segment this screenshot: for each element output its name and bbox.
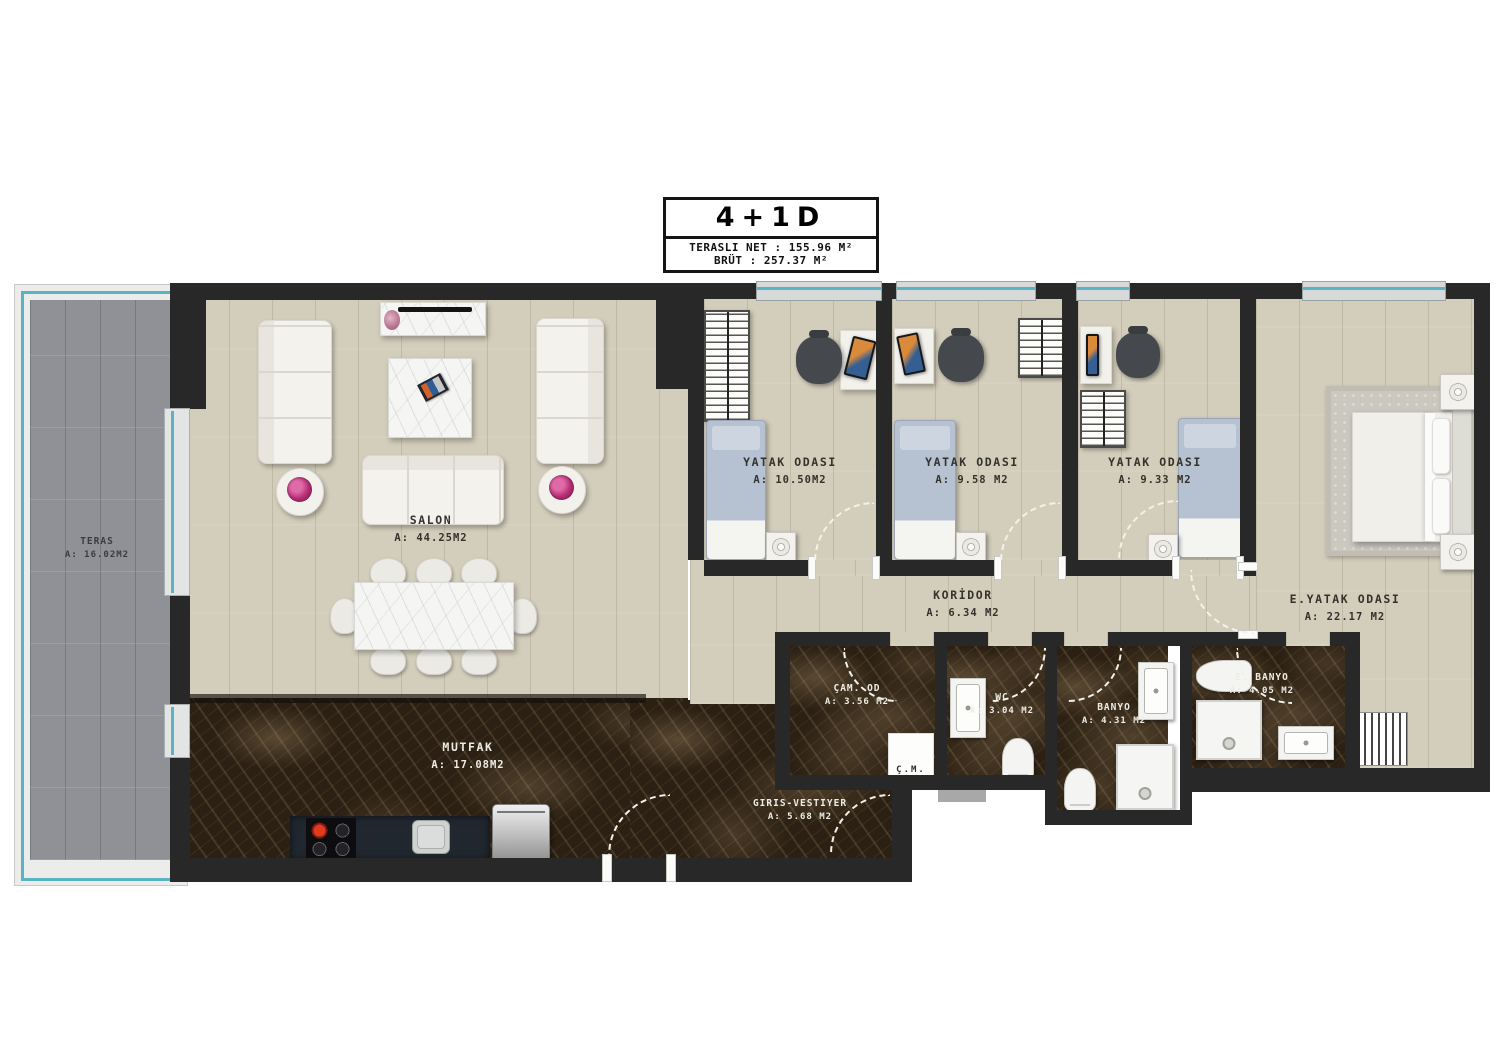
pillow <box>1432 478 1450 534</box>
net-area-text: TERASLI NET : 155.96 M² <box>666 241 876 254</box>
door-gap-laundry <box>890 632 934 646</box>
terrace-door-kitchen <box>164 704 190 758</box>
cooktop-icon <box>306 818 356 860</box>
wall <box>876 283 892 560</box>
nightstand-bedroom2 <box>956 532 986 562</box>
floor-plan: 4+1D TERASLI NET : 155.96 M² BRÜT : 257.… <box>0 0 1500 1060</box>
office-chair-icon <box>1116 332 1160 378</box>
room-label-koridor: KORİDOR A: 6.34 M2 <box>926 588 999 619</box>
bed-foot <box>895 520 955 559</box>
dining-table <box>354 582 514 650</box>
room-name: GIRIS-VESTIYER <box>753 798 847 809</box>
room-area: A: 17.08M2 <box>431 759 504 771</box>
wall <box>170 283 206 409</box>
nightstand-master-top <box>1440 374 1476 410</box>
nightstand-bedroom1 <box>766 532 796 562</box>
door-jamb <box>602 854 612 882</box>
room-area: A: 4.05 M2 <box>1230 686 1294 696</box>
wall <box>1045 810 1192 825</box>
master-bath-sink-icon <box>1278 726 1334 760</box>
wardrobe-bedroom2 <box>1018 318 1064 378</box>
room-label-teras: TERAS A: 16.02M2 <box>65 536 129 560</box>
dining-chair <box>370 646 406 675</box>
bed-foot <box>707 520 765 559</box>
wall <box>170 594 190 706</box>
door-gap-bedroom2 <box>998 560 1060 576</box>
room-area: A: 44.25M2 <box>394 532 467 544</box>
pillow <box>712 426 760 450</box>
terrace-floor <box>30 300 170 860</box>
wall <box>1240 283 1256 560</box>
room-name: WC <box>970 692 1034 703</box>
room-label-yatak3: YATAK ODASI A: 9.33 M2 <box>1108 455 1202 486</box>
window-bedroom2 <box>896 281 1036 301</box>
door-gap-master-bathroom <box>1286 632 1330 646</box>
room-name: YATAK ODASI <box>925 455 1019 469</box>
room-label-yatak1: YATAK ODASI A: 10.50M2 <box>743 455 837 486</box>
wall <box>170 283 704 300</box>
wall <box>1474 283 1490 792</box>
office-chair-icon <box>796 336 842 384</box>
room-label-giris: GIRIS-VESTIYER A: 5.68 M2 <box>753 798 847 822</box>
room-name: MUTFAK <box>431 740 504 754</box>
room-name: YATAK ODASI <box>1108 455 1202 469</box>
room-area: A: 6.34 M2 <box>926 607 999 619</box>
title-block: 4+1D TERASLI NET : 155.96 M² BRÜT : 257.… <box>663 197 879 273</box>
room-name: SALON <box>394 513 467 527</box>
wall <box>1345 632 1360 768</box>
room-name: BANYO <box>1082 702 1146 713</box>
plan-type-label: 4+1D <box>716 202 827 233</box>
room-name: YATAK ODASI <box>743 455 837 469</box>
wall <box>775 632 790 790</box>
door-gap-bathroom <box>1064 632 1108 646</box>
door-jamb <box>666 854 676 882</box>
wardrobe-bedroom1 <box>704 310 750 422</box>
office-chair-icon <box>938 334 984 382</box>
dining-chair <box>461 646 497 675</box>
wall <box>1180 632 1192 825</box>
room-label-wc: WC A: 3.04 M2 <box>970 692 1034 716</box>
wall <box>775 775 947 790</box>
wardrobe-bedroom3 <box>1080 390 1126 448</box>
master-bath-shower-icon <box>1196 700 1262 760</box>
room-area: A: 9.58 M2 <box>925 474 1019 486</box>
tv-icon <box>398 307 472 312</box>
bed-bedroom1 <box>706 420 766 560</box>
door-gap-wc <box>988 632 1032 646</box>
flowers-left-icon <box>287 477 312 502</box>
window-glass <box>1077 287 1129 290</box>
terrace-sliding-door-salon <box>164 408 190 596</box>
window-glass <box>1303 287 1445 290</box>
wall <box>892 788 912 882</box>
nightstand-master-bottom <box>1440 534 1476 570</box>
dining-chair <box>416 646 452 675</box>
pillow <box>1184 424 1236 448</box>
plan-type-box: 4+1D <box>663 197 879 239</box>
window-bedroom3 <box>1076 281 1130 301</box>
room-name: TERAS <box>65 536 129 547</box>
room-name: E. BANYO <box>1230 672 1294 683</box>
bathroom-shower-icon <box>1116 744 1174 810</box>
wall <box>935 775 1057 790</box>
fridge-icon <box>492 804 550 862</box>
room-area: A: 10.50M2 <box>743 474 837 486</box>
corridor-connector-floor <box>690 646 775 704</box>
room-area: A: 22.17 M2 <box>1290 611 1401 623</box>
room-label-yatak2: YATAK ODASI A: 9.58 M2 <box>925 455 1019 486</box>
bathroom-toilet-icon <box>1064 768 1096 812</box>
room-name: E.YATAK ODASI <box>1290 592 1401 606</box>
wall <box>1062 283 1078 560</box>
room-area: A: 5.68 M2 <box>753 812 847 822</box>
wall <box>688 283 704 560</box>
flowers-right-icon <box>549 475 574 500</box>
room-label-ebanyo: E. BANYO A: 4.05 M2 <box>1230 672 1294 696</box>
room-label-camod: ÇAM. OD A: 3.56 M2 <box>825 683 889 707</box>
room-area: A: 9.33 M2 <box>1108 474 1202 486</box>
plan-areas-box: TERASLI NET : 155.96 M² BRÜT : 257.37 M² <box>663 239 879 273</box>
window-glass <box>897 287 1035 290</box>
kitchen-sink-icon <box>412 820 450 854</box>
room-area: A: 4.31 M2 <box>1082 716 1146 726</box>
tv-decor-icon <box>384 310 400 330</box>
room-area: A: 16.02M2 <box>65 550 129 560</box>
headboard-master <box>1452 404 1472 550</box>
sofa-right <box>536 318 604 464</box>
sofa-left <box>258 320 332 464</box>
room-area: A: 3.56 M2 <box>825 697 889 707</box>
bed-bedroom2 <box>894 420 956 560</box>
wall <box>1045 632 1057 825</box>
room-label-eyatak: E.YATAK ODASI A: 22.17 M2 <box>1290 592 1401 623</box>
door-gap-bedroom1 <box>812 560 874 576</box>
pillow <box>1432 418 1450 474</box>
bed-bedroom3 <box>1178 418 1242 558</box>
wall <box>1180 768 1490 792</box>
room-label-salon: SALON A: 44.25M2 <box>394 513 467 544</box>
bed-foot <box>1179 518 1241 557</box>
room-label-banyo: BANYO A: 4.31 M2 <box>1082 702 1146 726</box>
door-glass <box>171 411 174 593</box>
wall <box>170 858 912 882</box>
window-glass <box>757 287 881 290</box>
window-bedroom1 <box>756 281 882 301</box>
wall <box>935 632 947 790</box>
radiator-icon <box>1356 712 1408 766</box>
brut-area-text: BRÜT : 257.37 M² <box>666 254 876 267</box>
monitor-icon <box>1086 334 1099 376</box>
room-label-mutfak: MUTFAK A: 17.08M2 <box>431 740 504 771</box>
room-name: ÇAM. OD <box>825 683 889 694</box>
door-glass <box>171 707 174 755</box>
pillow <box>900 426 950 450</box>
room-area: A: 3.04 M2 <box>970 706 1034 716</box>
window-master <box>1302 281 1446 301</box>
room-name: KORİDOR <box>926 588 999 602</box>
kitchen-top-shadow <box>186 694 646 703</box>
shaft-label: Ç.M. <box>896 765 926 775</box>
